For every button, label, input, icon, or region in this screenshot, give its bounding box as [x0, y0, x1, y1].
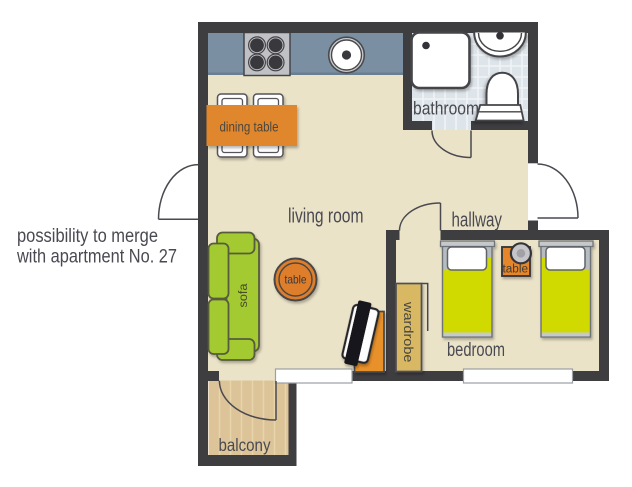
svg-text:bathroom: bathroom: [413, 98, 479, 119]
svg-text:sofa: sofa: [238, 283, 250, 308]
svg-text:balcony: balcony: [219, 435, 271, 455]
svg-text:possibility to merge: possibility to merge: [17, 225, 158, 247]
svg-text:hallway: hallway: [452, 209, 503, 232]
svg-text:table: table: [285, 273, 307, 287]
svg-text:table: table: [503, 264, 529, 276]
svg-text:bedroom: bedroom: [447, 339, 505, 361]
svg-text:with apartment No. 27: with apartment No. 27: [16, 246, 177, 268]
svg-text:living room: living room: [288, 206, 364, 228]
svg-text:wardrobe: wardrobe: [401, 301, 415, 363]
svg-text:dining table: dining table: [220, 120, 279, 135]
